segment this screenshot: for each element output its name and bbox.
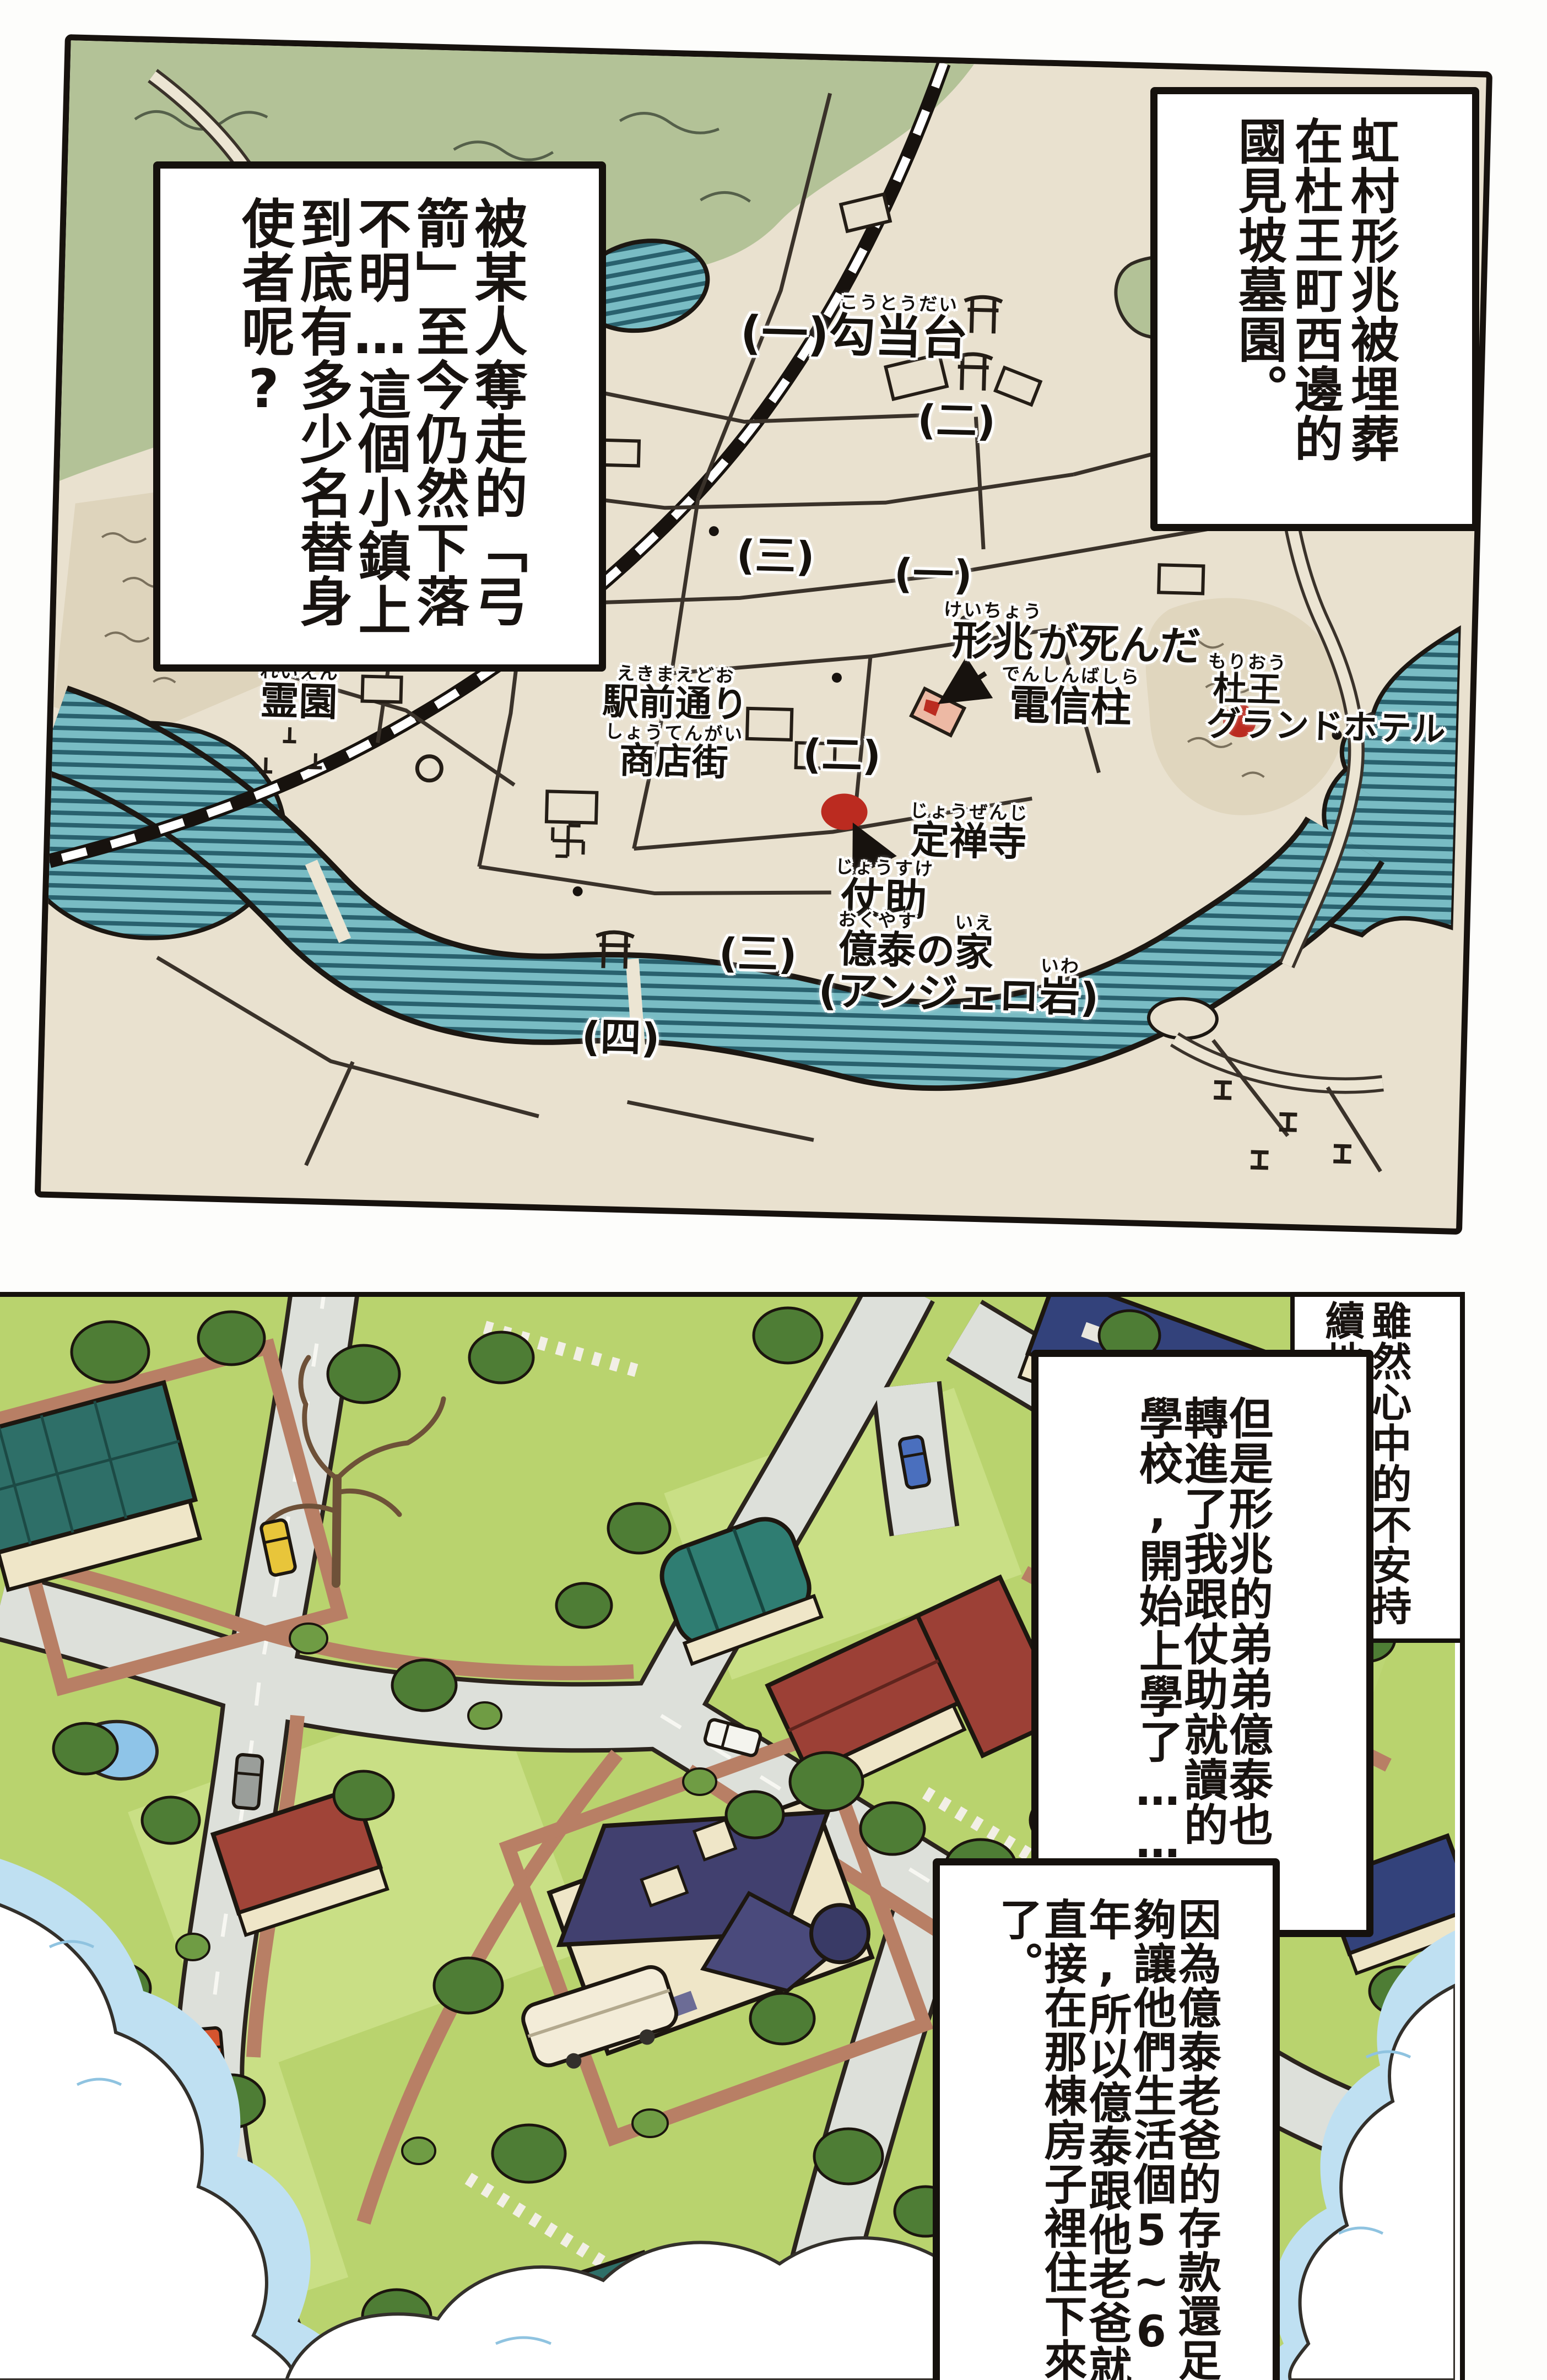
map-label-district: (二): [917, 399, 996, 443]
narration-text: 因為億泰老爸的存款還足夠讓他們生活個5~6年,所以億泰跟他老爸就直接在那棟房子裡…: [994, 1897, 1218, 2380]
map-label-district: (一): [894, 553, 973, 597]
narration-box-arrow: 被某人奪走的「弓箭」至今仍然下落不明…這個小鎮上到底有多少名替身使者呢?: [153, 161, 606, 672]
district-number: (一): [740, 306, 830, 362]
map-label-jozenji: 定禅寺じょうぜんじ: [908, 800, 1029, 863]
manga-page: (一)勾当台こうとうだい (二) (三) (一) 形兆けいちょうが死んだ 電信柱…: [0, 0, 1547, 2380]
map-island: [1148, 998, 1218, 1039]
map-label-ekimae: 駅前通りえきまえどお 商店街しょうてんがい: [601, 662, 749, 782]
map-label-district: (四): [581, 1016, 661, 1061]
narration-text: 虹村形兆被埋葬在杜王町西邊的國見坡墓園。: [1230, 116, 1399, 502]
map-label-district: (三): [736, 534, 815, 579]
map-label-keicho-pole: 形兆けいちょうが死んだ 電信柱でんしんばしら: [941, 599, 1202, 731]
narration-box-grave: 虹村形兆被埋葬在杜王町西邊的國見坡墓園。: [1150, 87, 1479, 531]
narration-box-house: 因為億泰老爸的存款還足夠讓他們生活個5~6年,所以億泰跟他老爸就直接在那棟房子裡…: [933, 1858, 1280, 2380]
narration-box-school: 但是形兆的弟弟億泰也轉進了我跟仗助就讀的學校,開始上學了……: [1031, 1350, 1373, 1937]
map-label-district: (二): [802, 733, 881, 778]
map-label-grand-hotel: 杜王もりおう グランドホテル: [1206, 651, 1447, 748]
map-label-kotodai: (一)勾当台こうとうだい: [740, 289, 969, 363]
narration-text: 被某人奪走的「弓箭」至今仍然下落不明…這個小鎮上到底有多少名替身使者呢?: [234, 196, 525, 637]
map-label-angelo-rock: (アンジェロ岩いわ): [818, 949, 1100, 1019]
map-label-district: (三): [718, 932, 798, 977]
narration-text: 但是形兆的弟弟億泰也轉進了我跟仗助就讀的學校,開始上學了……: [1135, 1395, 1270, 1891]
